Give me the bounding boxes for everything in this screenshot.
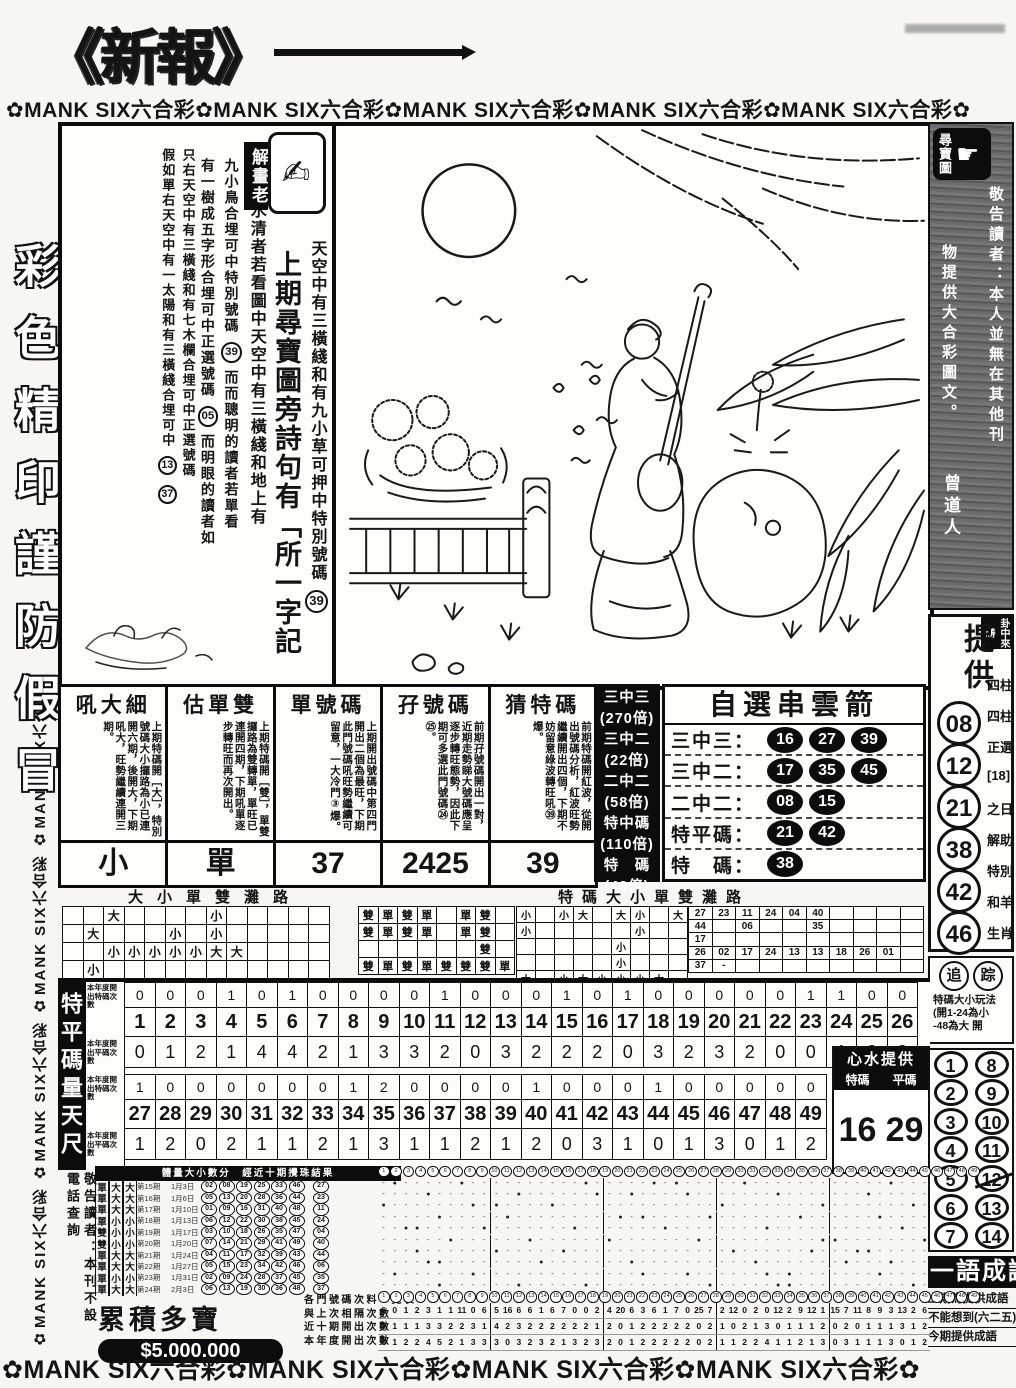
matrix-cell: - bbox=[919, 1223, 930, 1234]
matrix-cell: - bbox=[592, 1223, 603, 1234]
header-number-circle: 25 bbox=[673, 1166, 685, 1178]
matrix-cell: - bbox=[558, 1212, 569, 1223]
provide-side-text: 四柱 bbox=[987, 675, 1016, 694]
matrix-cell: - bbox=[513, 1257, 524, 1268]
drawn-ball: 30 bbox=[254, 1283, 270, 1296]
matrix-cell: - bbox=[615, 1200, 626, 1211]
road-cell: 24 bbox=[759, 907, 783, 920]
signature: 曾道人 bbox=[938, 474, 963, 540]
matrix-cell: - bbox=[626, 1212, 637, 1223]
treasure-map-badge: 尋寶圖 ☛ bbox=[933, 128, 991, 180]
scale-cell: 1 bbox=[430, 983, 461, 1008]
matrix-cell: - bbox=[423, 1269, 434, 1280]
scale-cell: 1 bbox=[247, 1129, 278, 1160]
road-cell: 小 bbox=[206, 907, 227, 925]
road-cell bbox=[736, 959, 760, 972]
scale-cell: 22 bbox=[765, 1008, 796, 1037]
scale-cell: 0 bbox=[430, 1075, 461, 1100]
matrix-cell: - bbox=[716, 1189, 728, 1200]
matrix-cell: - bbox=[423, 1280, 434, 1291]
matrix-cell: - bbox=[852, 1178, 863, 1189]
matrix-cell: - bbox=[897, 1212, 908, 1223]
road-cell bbox=[900, 946, 924, 959]
bottom-sketch bbox=[66, 578, 276, 682]
matrix-cell: - bbox=[693, 1200, 704, 1211]
count-cell: 3 bbox=[817, 1335, 828, 1350]
count-cell: 2 bbox=[524, 1335, 535, 1350]
scale-cell: 1 bbox=[796, 983, 827, 1008]
matrix-cell: - bbox=[704, 1178, 715, 1189]
matrix-cell: - bbox=[569, 1189, 580, 1200]
draw-row: 雙小小第20期1月20日07142129414940 bbox=[95, 1238, 401, 1249]
matrix-cell: - bbox=[739, 1223, 750, 1234]
count-cell: 0 bbox=[773, 1319, 784, 1334]
matrix-cell: ● bbox=[660, 1223, 671, 1234]
matrix-cell: - bbox=[806, 1269, 817, 1280]
road-cell: 04 bbox=[783, 907, 807, 920]
count-cell: 2 bbox=[580, 1319, 591, 1334]
road-cell bbox=[631, 939, 650, 955]
matrix-cell: ● bbox=[728, 1246, 739, 1257]
header-number-circle: 38 bbox=[833, 1166, 845, 1178]
matrix-cell: - bbox=[908, 1235, 919, 1246]
matrix-cell: ● bbox=[524, 1235, 535, 1246]
road-cell bbox=[593, 907, 612, 923]
matrix-cell: - bbox=[795, 1246, 806, 1257]
mark-six-banner-bottom: ✿MANK SIX六合彩✿MANK SIX六合彩✿MANK SIX六合彩✿MAN… bbox=[2, 1350, 1016, 1384]
matrix-cell: - bbox=[716, 1269, 728, 1280]
count-cell: 11 bbox=[852, 1303, 863, 1318]
road-cell bbox=[631, 955, 650, 971]
arrow-row-label: 特平碼： bbox=[671, 820, 767, 847]
road-cell bbox=[63, 907, 84, 925]
count-cell: 2 bbox=[682, 1319, 693, 1334]
matrix-cell: ● bbox=[423, 1257, 434, 1268]
road-cell: 大 bbox=[574, 907, 593, 923]
scale-cell: 3 bbox=[186, 1008, 217, 1037]
matrix-cell: - bbox=[434, 1269, 445, 1280]
matrix-cell: - bbox=[649, 1280, 660, 1291]
scale-cell: 1 bbox=[155, 1037, 186, 1068]
count-cell: 0 bbox=[389, 1303, 400, 1318]
matrix-cell: - bbox=[716, 1178, 728, 1189]
matrix-cell: - bbox=[649, 1212, 660, 1223]
interp-col-d-post: 而而聰明的讀者若單看 bbox=[224, 370, 240, 530]
scale-cell: 9 bbox=[369, 1008, 400, 1037]
count-cell: 2 bbox=[603, 1319, 615, 1334]
picked-number: 39 bbox=[851, 727, 887, 753]
interp-col-sky-text: 天空中有三橫綫和有九小草可押中特別號碼 bbox=[308, 240, 325, 582]
odds-line: 三中二 bbox=[604, 728, 651, 749]
matrix-cell: - bbox=[693, 1257, 704, 1268]
count-cell: 2 bbox=[660, 1319, 671, 1334]
matrix-cell: - bbox=[874, 1223, 885, 1234]
road-cell bbox=[783, 959, 807, 972]
matrix-cell: - bbox=[682, 1178, 693, 1189]
pair-number-circle: 7 bbox=[934, 1222, 968, 1249]
matrix-cell: - bbox=[863, 1280, 874, 1291]
matrix-cell: ● bbox=[389, 1178, 400, 1189]
tip-col-special: 特碼 bbox=[845, 1072, 869, 1090]
scale-cell: 32 bbox=[277, 1100, 308, 1129]
header-number-circle: 35 bbox=[796, 1166, 808, 1178]
matrix-cell: - bbox=[829, 1189, 841, 1200]
scale-cell: 0 bbox=[399, 1075, 430, 1100]
matrix-cell: - bbox=[569, 1200, 580, 1211]
scale-cell: 1 bbox=[430, 1129, 461, 1160]
matrix-cell: - bbox=[885, 1223, 896, 1234]
matrix-cell: - bbox=[490, 1280, 502, 1291]
interp-col-e-post: 而明眼的讀者如 bbox=[200, 434, 216, 546]
scale-cell: 0 bbox=[186, 983, 217, 1008]
count-cell: 1 bbox=[863, 1319, 874, 1334]
matrix-cell: - bbox=[897, 1189, 908, 1200]
count-cell: 3 bbox=[468, 1335, 479, 1350]
scale-cell: 0 bbox=[125, 1037, 156, 1068]
scale-cell: 2 bbox=[369, 1075, 400, 1100]
count-cell: 6 bbox=[378, 1303, 389, 1318]
matrix-cell: - bbox=[841, 1223, 852, 1234]
header-number-circle: 20 bbox=[612, 1166, 624, 1178]
matrix-cell: ● bbox=[412, 1223, 423, 1234]
matrix-cell: - bbox=[389, 1189, 400, 1200]
matrix-cell: - bbox=[761, 1246, 772, 1257]
matrix-cell: - bbox=[626, 1200, 637, 1211]
count-cell: 1 bbox=[908, 1319, 919, 1334]
matrix-cell: - bbox=[524, 1269, 535, 1280]
header-number-circle: 2 bbox=[390, 1166, 402, 1178]
count-cell: 1 bbox=[626, 1319, 637, 1334]
road-cell: 01 bbox=[877, 946, 901, 959]
scale-cell: 0 bbox=[613, 1075, 644, 1100]
te-numbers-road: 2723112404404406351726021724131318260137… bbox=[688, 906, 924, 973]
matrix-cell: ● bbox=[817, 1200, 828, 1211]
count-cell: 2 bbox=[739, 1335, 750, 1350]
count-cell: 13 bbox=[897, 1303, 908, 1318]
road-cell bbox=[877, 933, 901, 946]
count-cell: 2 bbox=[660, 1335, 671, 1350]
count-cell: 2 bbox=[445, 1319, 456, 1334]
count-cell: 1 bbox=[626, 1335, 637, 1350]
road-cell: 雙 bbox=[476, 924, 496, 941]
matrix-cell: - bbox=[389, 1246, 400, 1257]
road-cell: 雙 bbox=[398, 958, 418, 975]
matrix-cell: - bbox=[378, 1212, 389, 1223]
matrix-cell: - bbox=[536, 1212, 547, 1223]
idiom-line: 不能想到(六二五) bbox=[928, 1309, 1016, 1328]
matrix-cell: - bbox=[490, 1235, 502, 1246]
matrix-cell: - bbox=[400, 1246, 411, 1257]
count-cell: 2 bbox=[547, 1319, 558, 1334]
matrix-cell: ● bbox=[773, 1280, 784, 1291]
header-number-circle: 10 bbox=[489, 1291, 501, 1303]
count-cell: 12 bbox=[728, 1303, 739, 1318]
matrix-cell: ● bbox=[750, 1257, 761, 1268]
matrix-cell: - bbox=[784, 1189, 795, 1200]
matrix-row: --●●-----●-------●-------●--------●-----… bbox=[378, 1223, 930, 1234]
road-cell bbox=[650, 907, 669, 923]
road-cell bbox=[650, 955, 669, 971]
matrix-cell: - bbox=[558, 1178, 569, 1189]
matrix-cell: - bbox=[536, 1200, 547, 1211]
count-cell: 3 bbox=[490, 1335, 502, 1350]
matrix-cell: - bbox=[908, 1212, 919, 1223]
scale-cell: 1 bbox=[125, 1008, 156, 1037]
matrix-cell: - bbox=[817, 1257, 828, 1268]
road-cell bbox=[830, 959, 854, 972]
matrix-cell: - bbox=[649, 1189, 660, 1200]
scale-cell: 1 bbox=[613, 1129, 644, 1160]
scale-cell: 0 bbox=[582, 1075, 613, 1100]
matrix-cell: - bbox=[806, 1212, 817, 1223]
scale-cell: 0 bbox=[857, 983, 888, 1008]
road-cell: 小 bbox=[612, 955, 631, 971]
scale-cell: 6 bbox=[277, 1008, 308, 1037]
header-number-circle: 3 bbox=[403, 1166, 415, 1178]
scale-cell: 1 bbox=[277, 1129, 308, 1160]
matrix-cell: ● bbox=[784, 1280, 795, 1291]
matrix-cell: - bbox=[852, 1189, 863, 1200]
road-cell: 02 bbox=[712, 946, 736, 959]
chase-circles: 追踪 bbox=[930, 958, 1012, 994]
matrix-cell: ● bbox=[908, 1280, 919, 1291]
header-number-circle: 19 bbox=[599, 1166, 611, 1178]
matrix-cell: - bbox=[784, 1200, 795, 1211]
count-cell: 7 bbox=[704, 1303, 715, 1318]
scale-cell: 0 bbox=[460, 1075, 491, 1100]
count-cell: 1 bbox=[806, 1319, 817, 1334]
count-cell: 1 bbox=[400, 1319, 411, 1334]
road-cell: 單 bbox=[417, 924, 437, 941]
scale-cell: 1 bbox=[765, 1129, 796, 1160]
header-number-circle: 45 bbox=[919, 1166, 931, 1178]
road-cell bbox=[853, 907, 877, 920]
matrix-cell: - bbox=[378, 1178, 389, 1189]
matrix-cell: - bbox=[829, 1212, 841, 1223]
scale-cell: 18 bbox=[643, 1008, 674, 1037]
matrix-cell: - bbox=[660, 1200, 671, 1211]
matrix-cell: - bbox=[852, 1235, 863, 1246]
road-cell bbox=[612, 923, 631, 939]
header-number-circle: 11 bbox=[501, 1166, 513, 1178]
count-cell: 12 bbox=[773, 1303, 784, 1318]
matrix-cell: - bbox=[704, 1269, 715, 1280]
matrix-cell: - bbox=[682, 1257, 693, 1268]
road-cell bbox=[536, 939, 555, 955]
matrix-cell: - bbox=[784, 1246, 795, 1257]
matrix-cell: - bbox=[795, 1257, 806, 1268]
road-cell bbox=[759, 959, 783, 972]
count-cell: 2 bbox=[547, 1335, 558, 1350]
matrix-cell: - bbox=[908, 1257, 919, 1268]
road-cell: 小 bbox=[631, 907, 650, 923]
road-cell: 06 bbox=[736, 920, 760, 933]
matrix-cell: - bbox=[615, 1280, 626, 1291]
road-cell bbox=[247, 943, 268, 961]
matrix-cell: ● bbox=[479, 1223, 490, 1234]
count-cell: 1 bbox=[445, 1303, 456, 1318]
count-cell: 5 bbox=[434, 1335, 445, 1350]
matrix-cell: - bbox=[863, 1200, 874, 1211]
matrix-cell: - bbox=[750, 1235, 761, 1246]
scale-cell: 1 bbox=[491, 1129, 522, 1160]
matrix-cell: - bbox=[479, 1257, 490, 1268]
matrix-cell: - bbox=[671, 1200, 682, 1211]
road-cell bbox=[900, 920, 924, 933]
matrix-cell: ● bbox=[671, 1178, 682, 1189]
scale-cell: 43 bbox=[613, 1100, 644, 1129]
count-cell: 2 bbox=[649, 1319, 660, 1334]
header-number-circle: 5 bbox=[427, 1291, 439, 1303]
scale-cell: 21 bbox=[735, 1008, 766, 1037]
matrix-cell: - bbox=[885, 1212, 896, 1223]
matrix-cell: - bbox=[739, 1212, 750, 1223]
matrix-cell: - bbox=[558, 1223, 569, 1234]
matrix-cell: - bbox=[897, 1235, 908, 1246]
matrix-cell: - bbox=[806, 1200, 817, 1211]
matrix-cell: - bbox=[795, 1178, 806, 1189]
draw-date: 1月6日 bbox=[171, 1193, 201, 1204]
scale-cell: 41 bbox=[552, 1100, 583, 1129]
matrix-cell: - bbox=[378, 1257, 389, 1268]
matrix-cell: - bbox=[919, 1178, 930, 1189]
road-cell: 37 bbox=[689, 959, 713, 972]
header-number-circle: 32 bbox=[759, 1166, 771, 1178]
pair-number-circle: 8 bbox=[975, 1051, 1009, 1078]
matrix-cell: - bbox=[885, 1189, 896, 1200]
count-cell: 12 bbox=[806, 1303, 817, 1318]
count-cell: 3 bbox=[423, 1319, 434, 1334]
matrix-cell: - bbox=[434, 1200, 445, 1211]
matrix-cell: ● bbox=[637, 1212, 648, 1223]
count-cell: 2 bbox=[795, 1335, 806, 1350]
count-cell: 0 bbox=[580, 1303, 591, 1318]
count-cell: 4 bbox=[490, 1319, 502, 1334]
scale-cell: 8 bbox=[338, 1008, 369, 1037]
picked-number: 45 bbox=[851, 758, 887, 784]
matrix-cell: - bbox=[671, 1257, 682, 1268]
draw-date: 1月31日 bbox=[171, 1272, 201, 1283]
matrix-cell: - bbox=[626, 1235, 637, 1246]
header-number-circle: 14 bbox=[538, 1291, 550, 1303]
scale-cell: 0 bbox=[765, 983, 796, 1008]
scale-cell: 14 bbox=[521, 1008, 552, 1037]
draws-header: 體量大小數分 經近十期攪珠結果 bbox=[95, 1166, 401, 1181]
road-cell: 13 bbox=[806, 946, 830, 959]
count-cell: 1 bbox=[434, 1303, 445, 1318]
matrix-cell: - bbox=[784, 1257, 795, 1268]
matrix-cell: - bbox=[615, 1223, 626, 1234]
header-number-circle: 29 bbox=[722, 1166, 734, 1178]
matrix-cell: ● bbox=[445, 1235, 456, 1246]
scale-cell: 1 bbox=[338, 1037, 369, 1068]
scale-cell: 2 bbox=[430, 1037, 461, 1068]
matrix-cell: - bbox=[626, 1269, 637, 1280]
matrix-cell: - bbox=[389, 1257, 400, 1268]
matrix-cell: - bbox=[580, 1235, 591, 1246]
matrix-cell: - bbox=[434, 1246, 445, 1257]
matrix-cell: ● bbox=[693, 1235, 704, 1246]
matrix-cell: - bbox=[558, 1280, 569, 1291]
scale-cell: 2 bbox=[521, 1129, 552, 1160]
scale-row-labels: 本年度開出特碼次數本年度開出平碼次數本年度開出特碼次數本年度開出平碼次數 bbox=[86, 982, 125, 1170]
matrix-cell: - bbox=[919, 1189, 930, 1200]
scale-cell: 3 bbox=[582, 1129, 613, 1160]
matrix-cell: - bbox=[580, 1200, 591, 1211]
matrix-cell: ● bbox=[784, 1269, 795, 1280]
count-cell: 1 bbox=[806, 1335, 817, 1350]
matrix-cell: - bbox=[456, 1189, 467, 1200]
road-cell bbox=[830, 933, 854, 946]
matrix-cell: - bbox=[728, 1269, 739, 1280]
matrix-cell: - bbox=[468, 1223, 479, 1234]
matrix-cell: - bbox=[479, 1212, 490, 1223]
matrix-cell: - bbox=[547, 1280, 558, 1291]
matrix-cell: - bbox=[603, 1200, 615, 1211]
matrix-cell: - bbox=[547, 1235, 558, 1246]
matrix-cell: - bbox=[637, 1200, 648, 1211]
count-cell: 3 bbox=[885, 1335, 896, 1350]
matrix-row: ---●------●-----●--------------●------●-… bbox=[378, 1246, 930, 1257]
matrix-cell: ● bbox=[704, 1280, 715, 1291]
matrix-cell: - bbox=[513, 1223, 524, 1234]
road-cell bbox=[186, 961, 207, 979]
provide-number-circle: 12 bbox=[937, 743, 981, 787]
history-section: 敬告讀者：本刊不設電話查詢 體量大小數分 經近十期攪珠結果 單大大第15期1月3… bbox=[58, 1166, 930, 1348]
circled-number-05: 05 bbox=[198, 406, 219, 427]
provide-side-text: 生肖 bbox=[987, 923, 1016, 942]
header-number-circle: 21 bbox=[624, 1166, 636, 1178]
header-number-circle: 45 bbox=[919, 1291, 931, 1303]
matrix-cell: - bbox=[502, 1223, 513, 1234]
draw-date: 1月20日 bbox=[171, 1238, 201, 1249]
matrix-cell: - bbox=[389, 1200, 400, 1211]
matrix-cell: - bbox=[502, 1200, 513, 1211]
matrix-cell: - bbox=[829, 1223, 841, 1234]
road-cell bbox=[495, 907, 515, 924]
count-cell: 2 bbox=[682, 1335, 693, 1350]
matrix-cell: - bbox=[479, 1189, 490, 1200]
picked-number: 16 bbox=[767, 727, 803, 753]
drawn-ball: 42 bbox=[271, 1260, 287, 1273]
matrix-cell: - bbox=[423, 1178, 434, 1189]
matrix-cell: ● bbox=[682, 1189, 693, 1200]
road-cell: 小 bbox=[104, 943, 125, 961]
count-cell: 2 bbox=[649, 1335, 660, 1350]
year-count-row: 0122452133303232132320122222021122411213… bbox=[378, 1335, 930, 1351]
count-cell: 1 bbox=[536, 1303, 547, 1318]
count-cell: 3 bbox=[423, 1303, 434, 1318]
te-daxiao-road: 小小大大小大小小小小大小大小小小大 bbox=[516, 906, 688, 987]
drawn-ball: 01 bbox=[201, 1203, 217, 1216]
road-cell bbox=[555, 939, 574, 955]
scale-cell: 3 bbox=[399, 1037, 430, 1068]
matrix-cell: - bbox=[400, 1235, 411, 1246]
matrix-cell: - bbox=[603, 1257, 615, 1268]
provide-number-circle: 46 bbox=[937, 911, 981, 955]
odds-line: (22倍) bbox=[604, 749, 649, 770]
draw-date: 1月24日 bbox=[171, 1250, 201, 1261]
tip-box: 心水提供 特碼 平碼 16 29 bbox=[832, 1046, 930, 1174]
matrix-cell: - bbox=[445, 1280, 456, 1291]
left-margin: ✿MANK SIX六合彩 ✿MANK SIX六合彩 ✿MANK SIX六合彩 ✿… bbox=[0, 122, 58, 1348]
road-cell: 小 bbox=[165, 943, 186, 961]
header-number-circle: 37 bbox=[821, 1166, 833, 1178]
matrix-cell: - bbox=[445, 1200, 456, 1211]
road-cell bbox=[593, 923, 612, 939]
matrix-cell: - bbox=[693, 1246, 704, 1257]
road-cell bbox=[783, 920, 807, 933]
